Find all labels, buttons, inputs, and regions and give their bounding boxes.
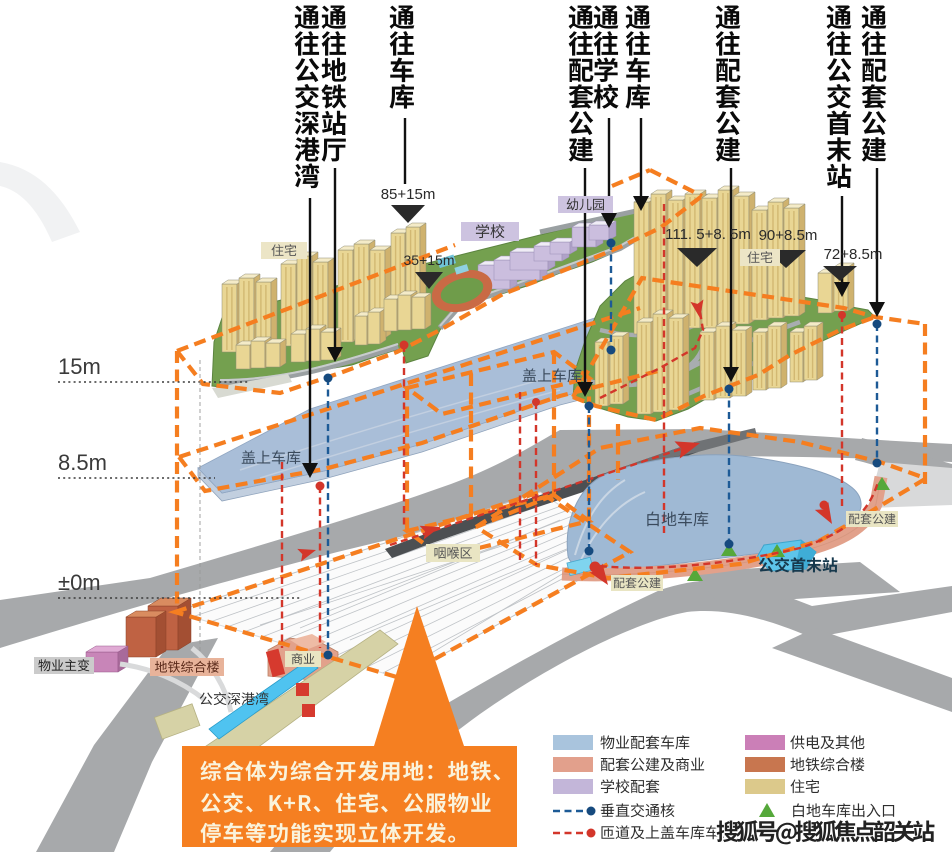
svg-text:8.5m: 8.5m xyxy=(58,450,107,475)
svg-text:15m: 15m xyxy=(58,354,101,379)
svg-text:±0m: ±0m xyxy=(58,570,101,595)
svg-text:35+15m: 35+15m xyxy=(404,252,455,268)
svg-text:72+8.5m: 72+8.5m xyxy=(824,246,883,263)
svg-text:90+8.5m: 90+8.5m xyxy=(759,227,818,244)
svg-text:111. 5+8. 5m: 111. 5+8. 5m xyxy=(665,226,751,243)
svg-text:85+15m: 85+15m xyxy=(381,186,436,203)
